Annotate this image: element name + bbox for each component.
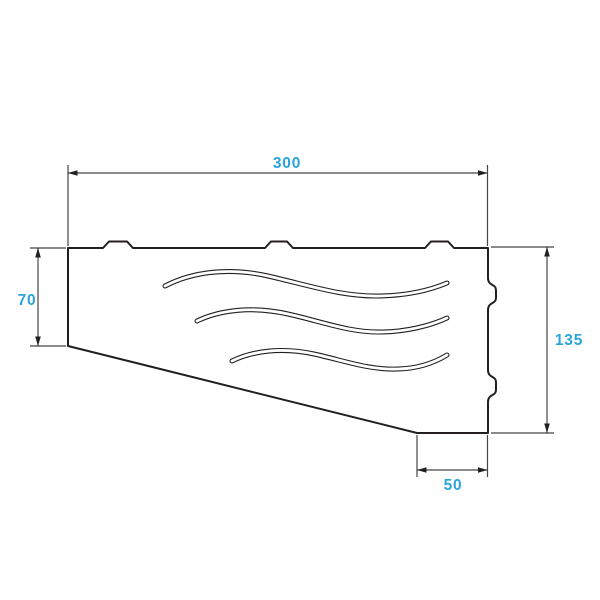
dimension-label-right-height: 135: [555, 332, 583, 349]
arrow-up-icon: [35, 248, 41, 258]
dimension-label-bottom-width: 50: [444, 477, 463, 494]
technical-drawing: 300 70 135 50: [0, 0, 600, 600]
dimension-top-width: 300: [68, 155, 488, 246]
dimension-label-top-width: 300: [273, 155, 301, 172]
arrow-down-icon: [35, 337, 41, 347]
drawing-canvas: 300 70 135 50: [0, 0, 600, 600]
arrow-up-icon: [544, 247, 550, 257]
dimension-bottom-width: 50: [417, 435, 488, 494]
arrow-right-icon: [478, 467, 488, 473]
arrow-left-icon: [68, 170, 78, 176]
arrow-left-icon: [417, 467, 427, 473]
arrow-right-icon: [478, 170, 488, 176]
dimension-left-height: 70: [18, 248, 66, 346]
dimension-label-left-height: 70: [18, 292, 37, 309]
dimension-right-height: 135: [491, 247, 583, 433]
arrow-down-icon: [544, 424, 550, 434]
part-profile-path: [68, 242, 496, 434]
part-outline: [68, 242, 496, 434]
